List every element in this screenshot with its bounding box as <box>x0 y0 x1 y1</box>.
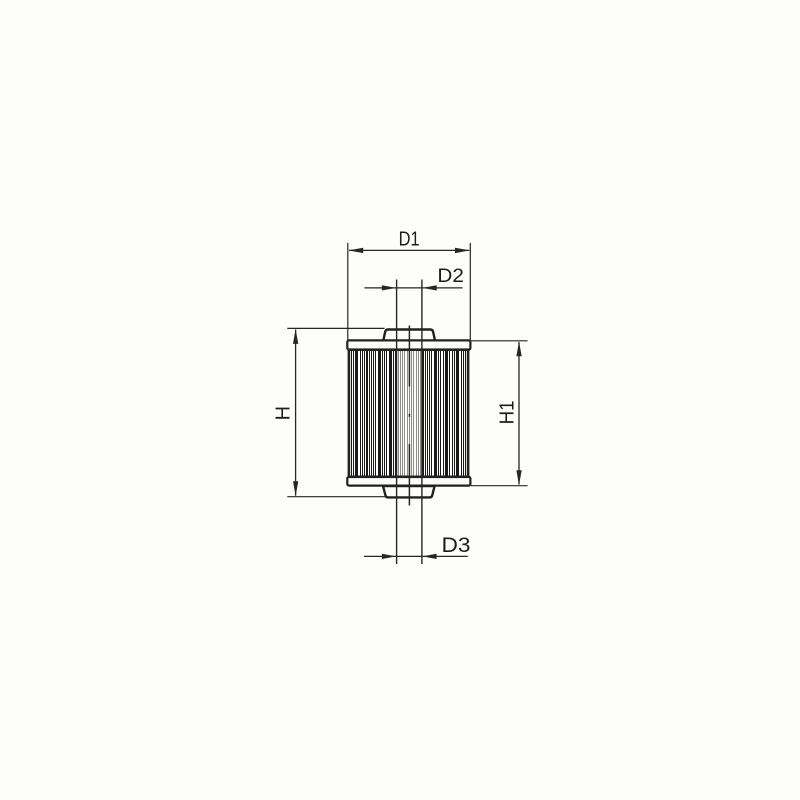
svg-text:D1: D1 <box>399 227 420 250</box>
svg-text:H: H <box>272 406 294 420</box>
svg-text:H1: H1 <box>497 400 519 424</box>
svg-text:D3: D3 <box>442 534 471 557</box>
svg-text:D2: D2 <box>437 266 464 287</box>
